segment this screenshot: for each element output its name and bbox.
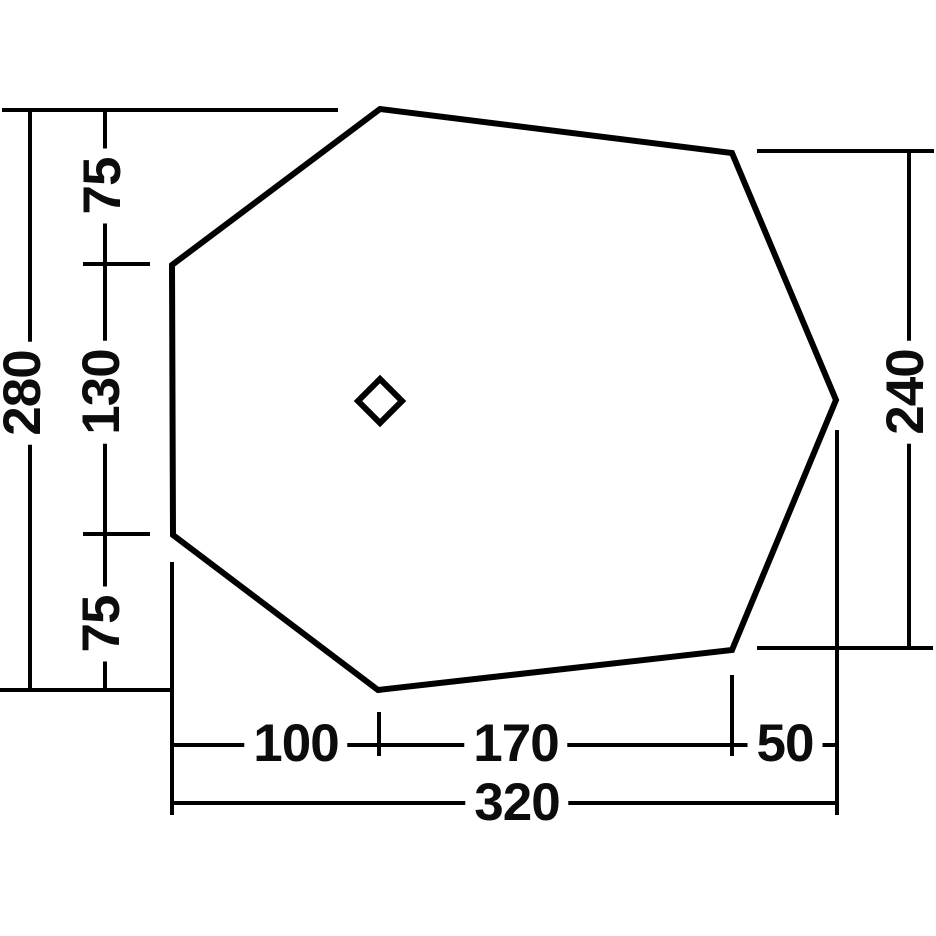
dim-label-left-middle-segment: 130 [74,340,130,443]
dim-label-bottom-middle-segment: 170 [464,716,567,772]
dim-label-left-bottom-segment: 75 [74,587,130,662]
dim-label-bottom-left-segment: 100 [244,716,347,772]
dim-label-left-top-segment: 75 [75,149,131,224]
dim-label-bottom-right-segment: 50 [748,716,823,772]
footprint-outline [172,109,836,690]
dim-label-right-height: 240 [878,340,934,443]
dimension-diagram: 280 75 130 75 240 100 170 50 320 [0,0,936,936]
dim-label-left-total-height: 280 [0,341,51,444]
dim-label-bottom-total-width: 320 [465,775,568,831]
